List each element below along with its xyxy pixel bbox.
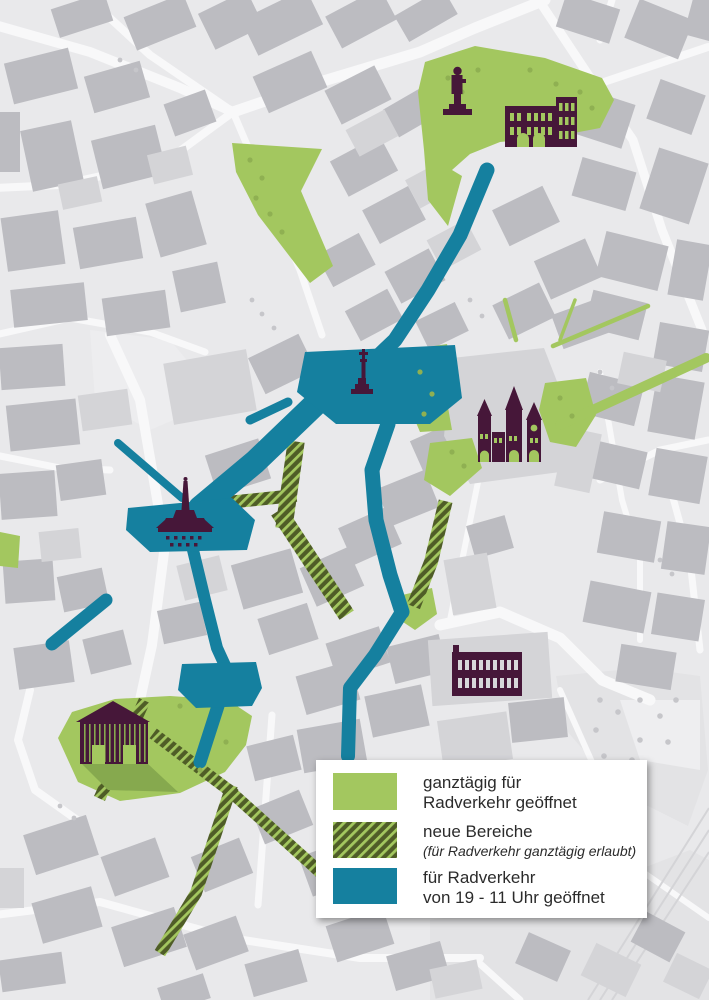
- legend-swatch-solid-teal: [333, 868, 397, 904]
- legend-swatch-hatched-green: [333, 822, 397, 858]
- legend: ganztägig für Radverkehr geöffnet neue B…: [316, 760, 647, 918]
- legend-label: (für Radverkehr ganztägig erlaubt): [423, 843, 636, 860]
- map-page: ganztägig für Radverkehr geöffnet neue B…: [0, 0, 709, 1000]
- legend-item-open-all-day: ganztägig für Radverkehr geöffnet: [333, 773, 635, 813]
- legend-swatch-solid-green: [333, 773, 397, 810]
- legend-label: ganztägig für: [423, 773, 577, 793]
- legend-item-timed-open: für Radverkehr von 19 - 11 Uhr geöffnet: [333, 868, 635, 908]
- basilica-icon: [452, 645, 522, 696]
- legend-item-new-areas: neue Bereiche (für Radverkehr ganztägig …: [333, 822, 635, 860]
- legend-label: für Radverkehr: [423, 868, 605, 888]
- legend-label: von 19 - 11 Uhr geöffnet: [423, 888, 605, 908]
- legend-label: Radverkehr geöffnet: [423, 793, 577, 813]
- legend-label: neue Bereiche: [423, 822, 636, 842]
